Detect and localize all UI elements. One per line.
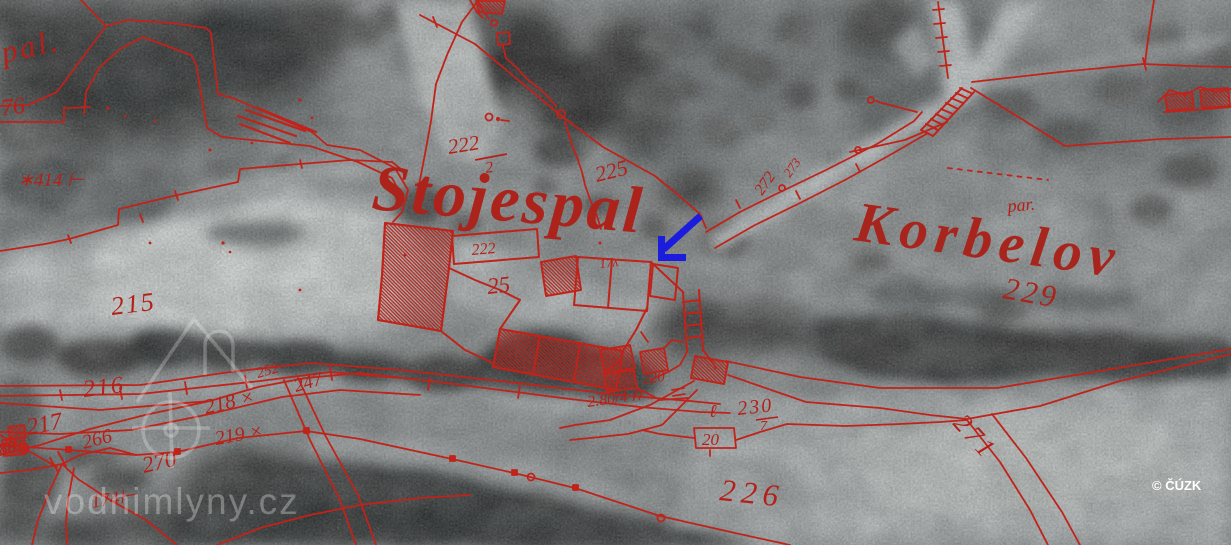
- svg-text:230: 230: [736, 394, 774, 420]
- svg-text:222: 222: [471, 240, 496, 259]
- svg-text:ℓ: ℓ: [709, 401, 717, 421]
- svg-text:25: 25: [486, 272, 511, 299]
- svg-text:215: 215: [109, 287, 157, 321]
- svg-text:222: 222: [446, 130, 481, 159]
- svg-text:17ʌ: 17ʌ: [599, 254, 619, 271]
- svg-text:20: 20: [702, 430, 720, 449]
- svg-text:220: 220: [641, 369, 666, 388]
- svg-text:76: 76: [0, 93, 27, 122]
- svg-text:7: 7: [760, 419, 768, 434]
- svg-text:∗414 ⊢: ∗414 ⊢: [18, 170, 84, 191]
- svg-text:vodnimlyny.cz: vodnimlyny.cz: [44, 481, 300, 522]
- svg-text:216: 216: [82, 372, 127, 403]
- svg-text:226: 226: [718, 472, 786, 514]
- svg-text:© ČÚZK: © ČÚZK: [1152, 478, 1202, 493]
